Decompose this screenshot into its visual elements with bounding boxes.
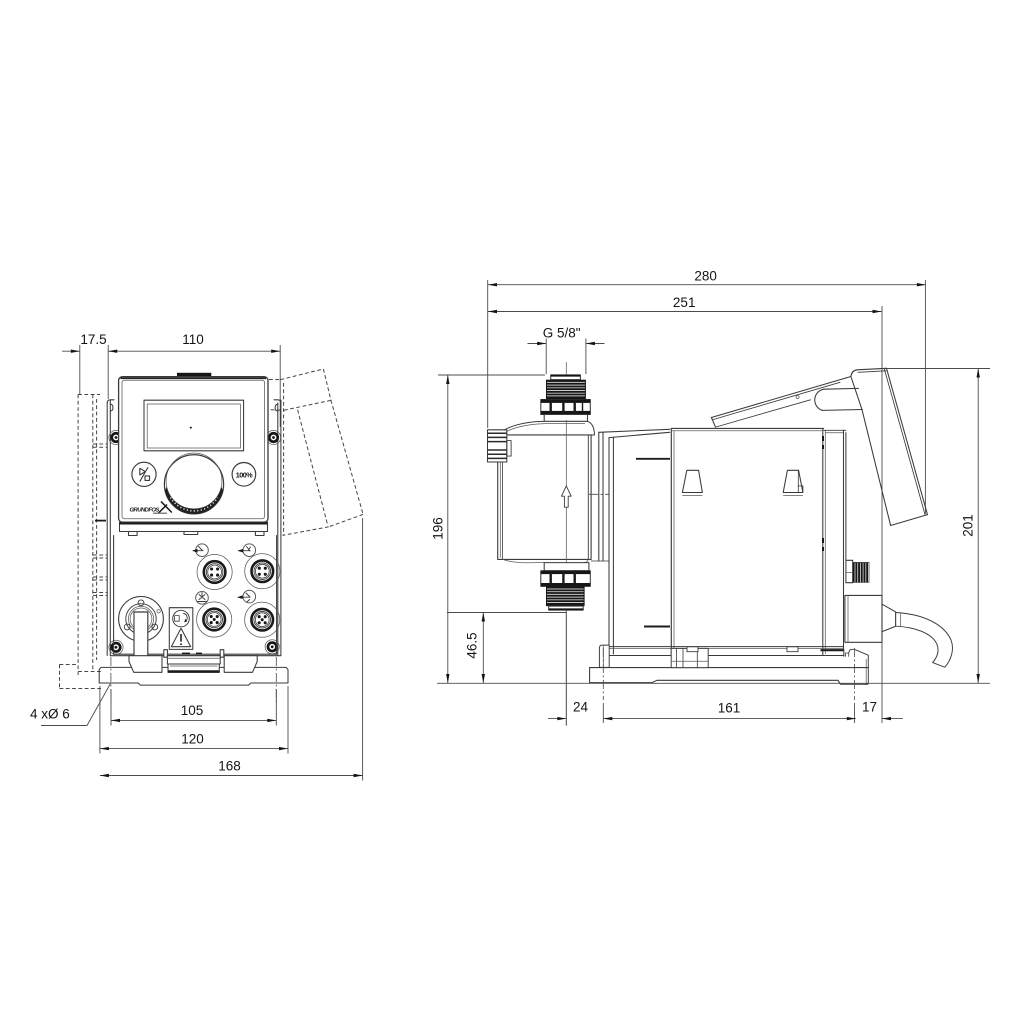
svg-text:17: 17 (862, 700, 877, 715)
svg-text:GRUNDFOS: GRUNDFOS (130, 507, 160, 513)
svg-text:196: 196 (431, 517, 446, 540)
svg-text:G 5/8": G 5/8" (543, 326, 581, 341)
svg-text:110: 110 (182, 332, 204, 347)
svg-text:251: 251 (673, 295, 696, 310)
svg-text:4 xØ 6: 4 xØ 6 (30, 707, 70, 722)
svg-text:201: 201 (961, 514, 976, 537)
svg-text:105: 105 (181, 703, 204, 718)
svg-text:280: 280 (694, 269, 717, 284)
svg-text:161: 161 (718, 701, 741, 716)
svg-text:17.5: 17.5 (80, 332, 106, 347)
svg-text:168: 168 (218, 759, 241, 774)
svg-text:100%: 100% (236, 470, 253, 479)
svg-text:24: 24 (573, 700, 589, 715)
svg-text:46.5: 46.5 (465, 632, 480, 658)
svg-text:120: 120 (181, 732, 204, 747)
